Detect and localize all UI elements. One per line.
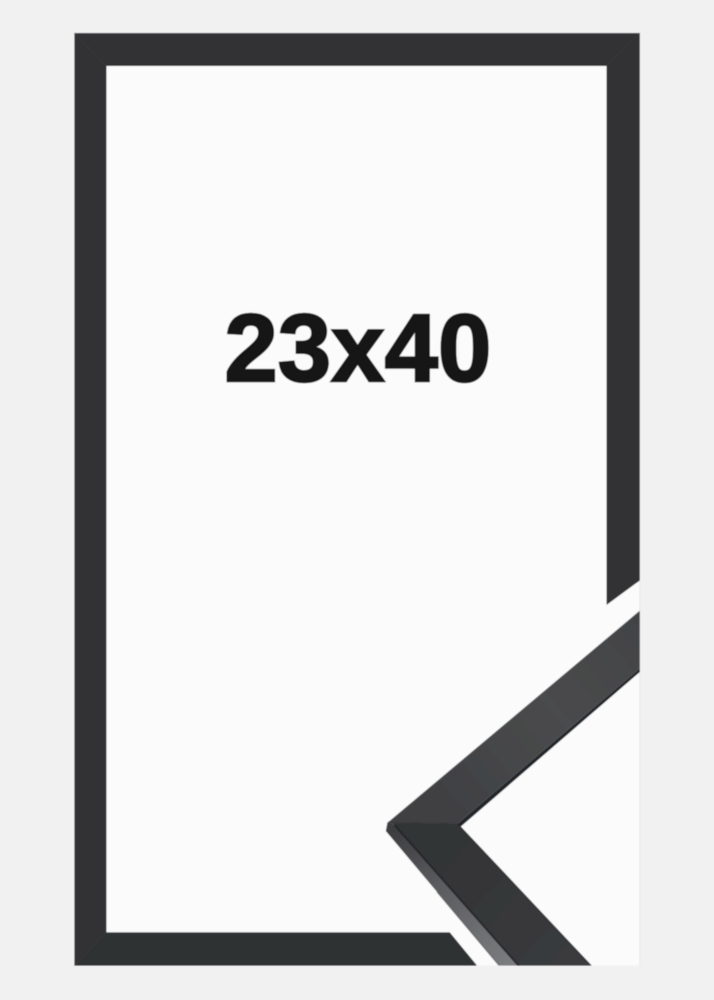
svg-text:23x40: 23x40 — [224, 296, 491, 402]
